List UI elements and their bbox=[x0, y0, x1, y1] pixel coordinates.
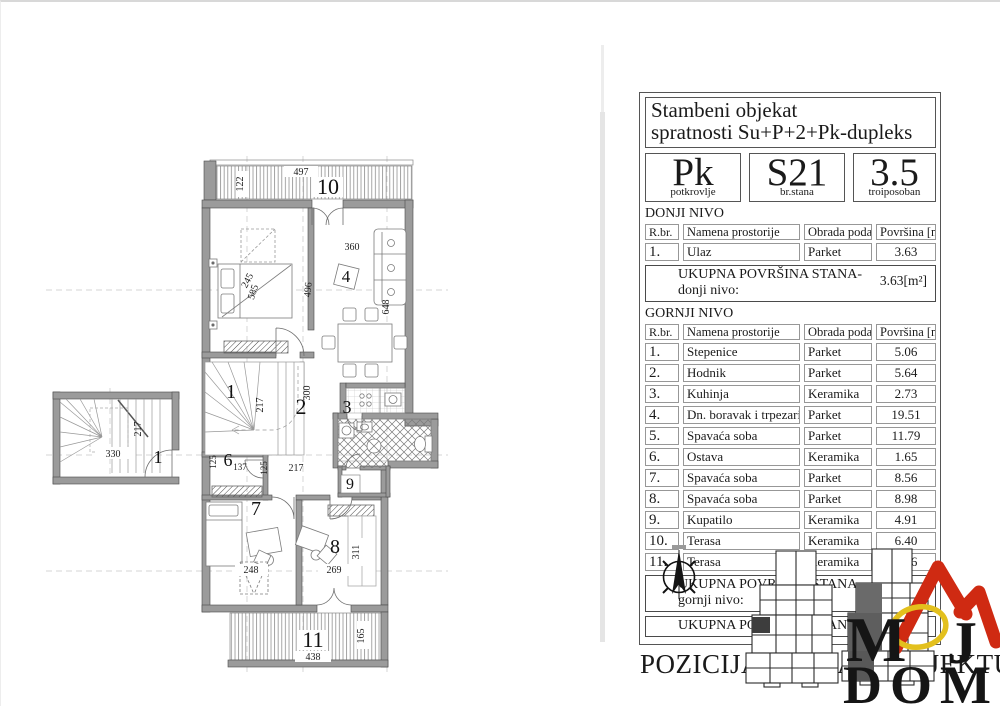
col-header-name: Namena prostorije bbox=[683, 224, 800, 240]
row-area: 11.79 bbox=[876, 427, 936, 445]
table-row: 8. Spavaća soba Parket 8.98 bbox=[645, 490, 936, 508]
row-floor: Parket bbox=[804, 343, 872, 361]
row-num: 3. bbox=[645, 385, 679, 403]
dim-label: 137 bbox=[233, 462, 247, 472]
col-header-num: R.br. bbox=[645, 324, 679, 340]
dim-label: 311 bbox=[351, 545, 362, 560]
dim-label: 496 bbox=[302, 282, 314, 298]
col-header-floor: Obrada poda bbox=[804, 224, 872, 240]
row-floor: Keramika bbox=[804, 385, 872, 403]
table-header-row: R.br. Namena prostorije Obrada poda Povr… bbox=[645, 224, 936, 240]
col-header-name: Namena prostorije bbox=[683, 324, 800, 340]
table-header-row: R.br. Namena prostorije Obrada poda Povr… bbox=[645, 324, 936, 340]
dim-label: 330 bbox=[106, 449, 121, 460]
building-title-line1: Stambeni objekat bbox=[651, 100, 930, 122]
col-header-floor: Obrada poda bbox=[804, 324, 872, 340]
floor-caption: potkrovlje bbox=[646, 187, 740, 198]
row-floor: Parket bbox=[804, 364, 872, 382]
row-name: Kupatilo bbox=[683, 511, 800, 529]
room-number: 1 bbox=[154, 447, 163, 467]
col-header-num: R.br. bbox=[645, 224, 679, 240]
room-number: 9 bbox=[346, 476, 354, 493]
room-number: 8 bbox=[330, 536, 340, 558]
row-num: 2. bbox=[645, 364, 679, 382]
row-area: 4.91 bbox=[876, 511, 936, 529]
row-num: 7. bbox=[645, 469, 679, 487]
dim-label: 269 bbox=[327, 565, 342, 576]
row-num: 4. bbox=[645, 406, 679, 424]
building-title: Stambeni objekat spratnosti Su+P+2+Pk-du… bbox=[645, 97, 936, 148]
dim-label: 217 bbox=[255, 398, 266, 413]
dim-label: 300 bbox=[302, 386, 313, 401]
row-floor: Keramika bbox=[804, 511, 872, 529]
row-area: 8.98 bbox=[876, 490, 936, 508]
dim-label: 360 bbox=[345, 242, 360, 253]
dim-label: 122 bbox=[235, 177, 246, 192]
dim-label: 165 bbox=[356, 629, 367, 644]
page-fold-divider bbox=[600, 112, 605, 642]
table-row: 3. Kuhinja Keramika 2.73 bbox=[645, 385, 936, 403]
dim-label: 648 bbox=[381, 300, 392, 315]
page-fold-divider bbox=[601, 45, 604, 113]
dim-label: 438 bbox=[306, 652, 321, 663]
room-number: 7 bbox=[251, 498, 261, 520]
room-number: 6 bbox=[224, 450, 233, 470]
row-name: Dn. boravak i trpezarija bbox=[683, 406, 800, 424]
table-row: 5. Spavaća soba Parket 11.79 bbox=[645, 427, 936, 445]
row-area: 5.06 bbox=[876, 343, 936, 361]
row-num: 8. bbox=[645, 490, 679, 508]
building-title-line2: spratnosti Su+P+2+Pk-dupleks bbox=[651, 122, 930, 144]
row-name: Ulaz bbox=[683, 243, 800, 261]
room-number: 1 bbox=[226, 381, 236, 403]
table-row: 4. Dn. boravak i trpezarija Parket 19.51 bbox=[645, 406, 936, 424]
dim-label: 217 bbox=[289, 463, 304, 474]
dim-label: 248 bbox=[244, 565, 259, 576]
room-number: 10 bbox=[317, 174, 339, 199]
floor-plan-drawing: 497 122 10 245 585 360 4 496 648 1 217 2… bbox=[0, 0, 600, 706]
row-name: Spavaća soba bbox=[683, 469, 800, 487]
row-area: 19.51 bbox=[876, 406, 936, 424]
badges: Pk potkrovlje S21 br.stana 3.5 troiposob… bbox=[645, 153, 936, 202]
apartment-number-caption: br.stana bbox=[750, 187, 844, 198]
row-num: 6. bbox=[645, 448, 679, 466]
row-name: Stepenice bbox=[683, 343, 800, 361]
row-area: 1.65 bbox=[876, 448, 936, 466]
row-name: Spavaća soba bbox=[683, 490, 800, 508]
table-row: 6. Ostava Keramika 1.65 bbox=[645, 448, 936, 466]
row-area: 2.73 bbox=[876, 385, 936, 403]
badge-floor: Pk potkrovlje bbox=[645, 153, 741, 202]
position-map: M J DOM bbox=[630, 543, 1000, 706]
section-upper-level: GORNJI NIVO bbox=[645, 306, 936, 322]
row-floor: Parket bbox=[804, 427, 872, 445]
row-name: Hodnik bbox=[683, 364, 800, 382]
col-header-area: Površina [m²] bbox=[876, 324, 936, 340]
row-num: 1. bbox=[645, 243, 679, 261]
dim-label: 497 bbox=[294, 167, 309, 178]
logo-word-dom: DOM bbox=[843, 655, 999, 706]
table-row: 1. Ulaz Parket 3.63 bbox=[645, 243, 936, 261]
row-floor: Parket bbox=[804, 243, 872, 261]
table-row: 1. Stepenice Parket 5.06 bbox=[645, 343, 936, 361]
row-floor: Keramika bbox=[804, 448, 872, 466]
row-area: 3.63 bbox=[876, 243, 936, 261]
row-num: 1. bbox=[645, 343, 679, 361]
room-number: 3 bbox=[343, 397, 352, 417]
badge-apartment-number: S21 br.stana bbox=[749, 153, 845, 202]
total-lower-level: UKUPNA POVRŠINA STANA-donji nivo: 3.63[m… bbox=[645, 265, 936, 302]
dim-label: 125 bbox=[208, 455, 218, 469]
section-lower-level: DONJI NIVO bbox=[645, 206, 936, 222]
dim-label: 125 bbox=[259, 461, 269, 475]
row-name: Ostava bbox=[683, 448, 800, 466]
table-row: 2. Hodnik Parket 5.64 bbox=[645, 364, 936, 382]
row-name: Kuhinja bbox=[683, 385, 800, 403]
table-row: 7. Spavaća soba Parket 8.56 bbox=[645, 469, 936, 487]
dim-label: 217 bbox=[133, 422, 144, 437]
total-lower-label: UKUPNA POVRŠINA STANA-donji nivo: bbox=[678, 267, 880, 299]
compass-north-icon bbox=[663, 545, 695, 599]
room-number: 4 bbox=[342, 267, 351, 286]
row-area: 5.64 bbox=[876, 364, 936, 382]
row-num: 5. bbox=[645, 427, 679, 445]
row-floor: Parket bbox=[804, 469, 872, 487]
row-floor: Parket bbox=[804, 406, 872, 424]
table-row: 9. Kupatilo Keramika 4.91 bbox=[645, 511, 936, 529]
badge-room-count: 3.5 troiposoban bbox=[853, 153, 936, 202]
row-name: Spavaća soba bbox=[683, 427, 800, 445]
row-area: 8.56 bbox=[876, 469, 936, 487]
building-plan-thumbnail bbox=[746, 551, 838, 687]
col-header-area: Površina [m²] bbox=[876, 224, 936, 240]
room-count-caption: troiposoban bbox=[854, 187, 935, 198]
total-lower-value: 3.63[m²] bbox=[880, 273, 927, 289]
row-num: 9. bbox=[645, 511, 679, 529]
row-floor: Parket bbox=[804, 490, 872, 508]
room-number: 11 bbox=[302, 627, 323, 652]
